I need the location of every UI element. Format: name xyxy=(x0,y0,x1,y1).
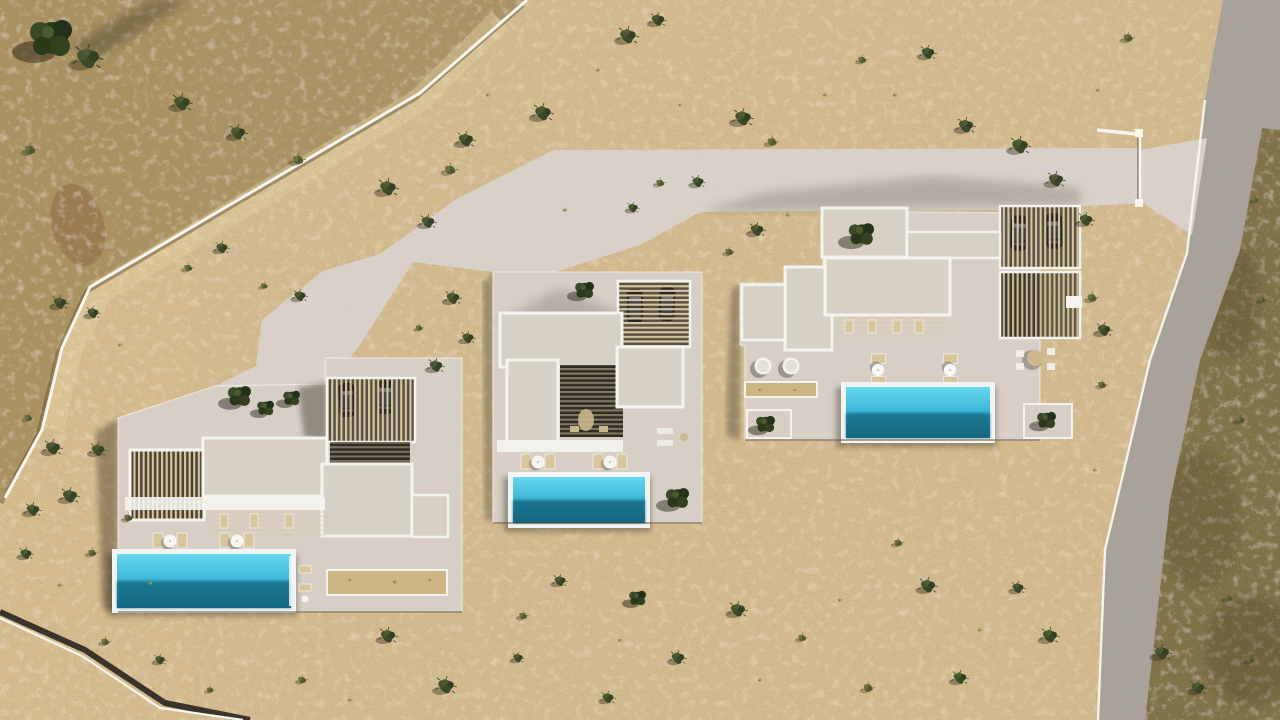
carport xyxy=(1000,206,1080,268)
pergola-louvers xyxy=(618,281,690,347)
pool-step xyxy=(289,556,295,606)
sun-lounger-group xyxy=(593,454,627,471)
pergola-louvers xyxy=(1000,206,1080,268)
aerial-render: Aerial site plan render - three luxury v… xyxy=(0,0,1280,720)
veranda-shade xyxy=(837,317,947,337)
gravel-planter xyxy=(745,382,817,397)
rooftop-unit xyxy=(1066,296,1082,308)
swimming-pool xyxy=(836,382,996,447)
gravel-planter xyxy=(327,570,447,595)
sun-lounger-group xyxy=(870,354,886,386)
walkway xyxy=(497,440,623,452)
roof xyxy=(322,464,412,536)
gate-post xyxy=(1135,129,1143,137)
veranda-shade xyxy=(207,510,325,536)
roof xyxy=(742,285,785,340)
roof xyxy=(507,360,558,443)
sun-lounger-group xyxy=(220,533,254,550)
roof xyxy=(825,258,950,315)
pool-deep-end xyxy=(846,413,990,438)
gate-post xyxy=(1135,199,1143,207)
swimming-pool xyxy=(107,549,297,616)
roof xyxy=(907,232,1000,258)
carport xyxy=(298,378,415,442)
louvered-courtyard xyxy=(1000,272,1082,338)
shaded-courtyard xyxy=(330,442,410,464)
roof xyxy=(412,495,448,537)
shaded-courtyard xyxy=(560,365,623,437)
pool-deep-end xyxy=(513,500,645,523)
walkway xyxy=(125,497,325,510)
pool-deep-end xyxy=(117,581,291,608)
sun-lounger-group xyxy=(942,354,958,386)
roof xyxy=(617,347,683,407)
carport xyxy=(618,281,690,347)
roof xyxy=(203,438,327,496)
pergola-louvers xyxy=(327,378,415,442)
sun-lounger-group xyxy=(521,454,555,471)
sun-lounger-group xyxy=(153,533,187,550)
